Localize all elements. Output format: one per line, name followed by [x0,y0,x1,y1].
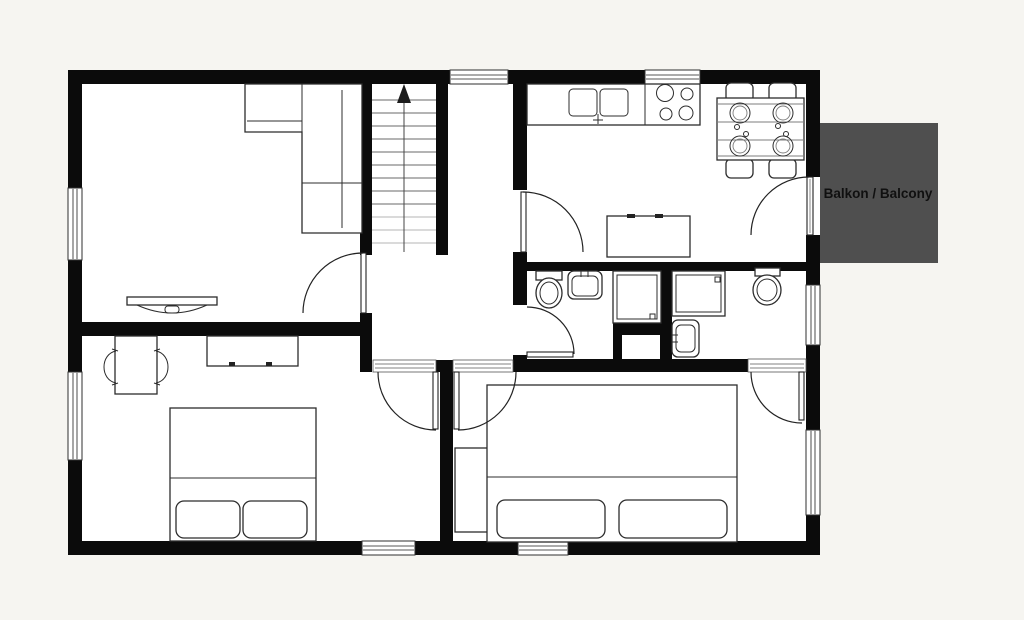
toilet [536,271,562,308]
wall-stair-right [436,84,448,255]
floor-plan: Balkon / Balcony [0,0,1024,620]
kitchen-counter [527,84,700,125]
toilet [753,268,781,305]
wall-living-bedroom1 [68,322,360,336]
wall-between-bathrooms [660,271,672,372]
kitchen-island [607,214,690,257]
window-kitchen-top [645,70,700,84]
pillow [176,501,240,538]
window-bedroom2-right [806,430,820,515]
wall-outer-left [68,70,82,555]
pillow [243,501,307,538]
window-living-left [68,188,82,260]
wall-bedroom-divider [440,360,453,541]
balcony-label: Balkon / Balcony [824,186,933,201]
wall-kitchen-hall-mid [513,252,527,305]
washbasin [568,271,602,299]
wall-kitchen-hall-upper [513,84,527,190]
threshold-bathroom2 [748,359,806,372]
sideboard [207,336,298,366]
desk-table [115,336,157,394]
wall-bathroom-bottom [513,359,748,372]
washbasin [672,320,699,357]
threshold-bedroom1 [373,360,436,372]
window-bathroom-right [806,285,820,345]
balcony: Balkon / Balcony [818,123,938,263]
window-bedroom1-bottom [362,541,415,555]
wall-shaft-top [613,323,672,335]
dining-chair [769,159,796,178]
wall-outer-bottom [68,541,820,555]
wall-hall-column [360,313,372,372]
window-hall-top [450,70,508,84]
dining-chair [726,159,753,178]
floor-plan-svg: Balkon / Balcony [0,0,1024,620]
double-bed [170,408,316,541]
shower [613,271,661,323]
pillow [619,500,727,538]
window-bedroom1-left [68,372,82,460]
threshold-bedroom2 [453,360,513,372]
window-bedroom2-bottom [518,541,568,555]
wall-outer-top [68,70,820,84]
bedroom-right [455,385,737,542]
shower [672,271,725,316]
double-bed [487,385,737,542]
wall-shaft-left [613,335,622,361]
pillow [497,500,605,538]
